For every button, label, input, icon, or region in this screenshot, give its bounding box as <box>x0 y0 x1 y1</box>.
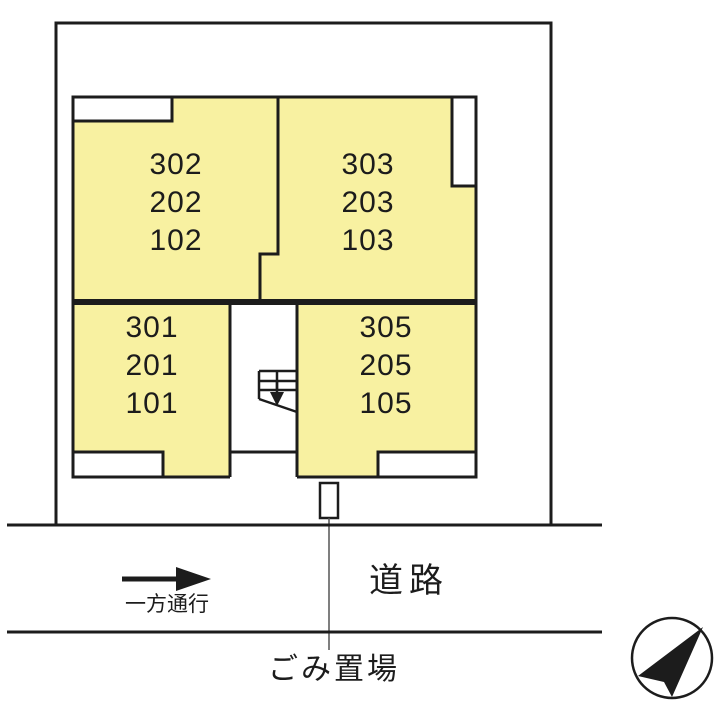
room-301-label: 301 201 101 <box>125 309 178 423</box>
one-way-label: 一方通行 <box>125 594 209 616</box>
north-arrow-icon <box>632 618 712 698</box>
unit-number: 102 <box>149 222 202 260</box>
balcony-notch-top-right <box>452 97 476 186</box>
unit-number: 103 <box>341 222 394 260</box>
balcony-notch-top-left <box>73 97 172 121</box>
unit-number: 305 <box>359 309 412 347</box>
unit-number: 105 <box>359 385 412 423</box>
room-305-label: 305 205 105 <box>359 309 412 423</box>
unit-number: 201 <box>125 347 178 385</box>
room-302-label: 302 202 102 <box>149 146 202 260</box>
unit-number: 301 <box>125 309 178 347</box>
unit-number: 202 <box>149 184 202 222</box>
unit-number: 303 <box>341 146 394 184</box>
one-way-arrow-icon <box>122 567 211 591</box>
garbage-area-label: ごみ置場 <box>268 654 400 686</box>
site-plan: 302 202 102 303 203 103 301 201 101 305 … <box>0 0 720 720</box>
room-303-label: 303 203 103 <box>341 146 394 260</box>
road-label: 道路 <box>369 563 449 599</box>
balcony-notch-bottom-right <box>378 452 476 477</box>
garbage-box <box>320 483 338 518</box>
unit-number: 203 <box>341 184 394 222</box>
balcony-notch-bottom-left <box>73 452 163 477</box>
unit-number: 101 <box>125 385 178 423</box>
unit-number: 205 <box>359 347 412 385</box>
unit-number: 302 <box>149 146 202 184</box>
